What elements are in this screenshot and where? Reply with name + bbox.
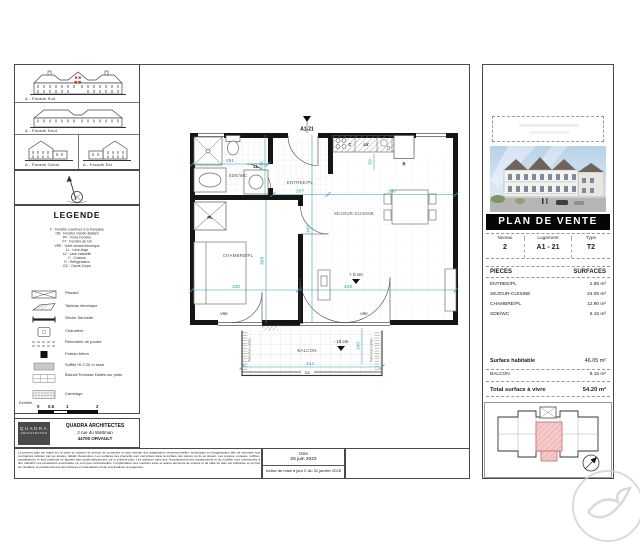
disclaimer-cell: Le présent plan est établi sur la base d… <box>14 448 262 479</box>
symbol-label: Poteau béton <box>65 352 137 357</box>
legende-title: LEGENDE <box>15 210 139 220</box>
logement-header: Logement <box>524 236 572 241</box>
dim-sde-height: 211 <box>259 161 265 169</box>
dim-entree-width: 207 <box>296 189 304 195</box>
balcon-dalles-symbol-icon <box>31 374 57 383</box>
floor-plan-drawing: A1-21 291 211 207 350 50 469 368 330 428… <box>140 64 482 448</box>
surfaces-header: SURFACES <box>573 269 606 275</box>
dim-sejour-width: 428 <box>344 284 352 290</box>
architect-name: QUADRA ARCHITECTES <box>53 423 137 429</box>
facade-nord-drawing <box>28 105 128 129</box>
symbol-label: Retombée de poutre <box>65 340 137 345</box>
sud-unit-highlight <box>75 81 78 84</box>
retombee-poutre-symbol-icon <box>31 340 57 348</box>
facade-label-est: A - Facade Est <box>83 162 112 167</box>
architect-city: 44700 ORVAULT <box>53 436 137 441</box>
facade-divider-2 <box>15 134 139 135</box>
watermark-stamp <box>572 470 640 542</box>
sink-icon <box>381 140 387 146</box>
dining-table-icon <box>392 190 428 224</box>
label-pl: PL <box>207 215 213 220</box>
key-plan-drawing <box>485 403 611 477</box>
symbol-label: Carrelage <box>65 392 137 397</box>
tableau-electrique-symbol-icon <box>31 302 57 311</box>
facade-sud-drawing <box>28 67 128 97</box>
poteau-beton-symbol-icon <box>31 350 57 359</box>
facade-label-nord: A - Facade Nord <box>25 128 57 133</box>
dim-sde-width: 291 <box>226 158 234 164</box>
plan-de-vente-sheet: A - Facade Sud A - Facade Nord A - Facad… <box>0 0 640 548</box>
soffite-symbol-icon <box>31 362 57 371</box>
dim-kitchen-width: 350 <box>388 189 396 195</box>
svg-text:Pare-Vue Lames: Pare-Vue Lames <box>370 338 374 362</box>
label-c: C <box>348 142 351 147</box>
room-label-sejour: SEJOUR-CUISINE <box>334 211 374 216</box>
fridge-icon <box>394 136 414 159</box>
facades-box: A - Facade Sud A - Facade Nord A - Facad… <box>14 64 140 170</box>
scale-tick-05: 0.5 <box>48 404 54 409</box>
pieces-header: PIECES <box>490 269 512 275</box>
facade-divider-1 <box>15 102 139 103</box>
table-row: SDE/WC 6.15 m² <box>486 312 610 322</box>
room-label-entree: ENTREE/PL <box>287 180 314 185</box>
level-balcon: - 10 cm <box>333 339 348 344</box>
table-row: ENTREE/PL 2.95 m² <box>486 282 610 292</box>
dim-sejour-height: 469 <box>306 225 312 233</box>
carrelage-symbol-icon <box>31 390 57 399</box>
scale-bar-seg1 <box>38 410 53 414</box>
dim-niche: 50 <box>368 159 374 165</box>
svg-text:Pare-Vue Lames: Pare-Vue Lames <box>248 338 252 362</box>
symbol-label: Sèche Serviette <box>65 316 137 321</box>
date-label: Date <box>263 451 344 456</box>
scale-tick-0: 0 <box>37 404 40 409</box>
watermark-bird-icon <box>574 472 640 540</box>
total-row-habitable: Surface habitable 46.05 m² <box>486 358 610 370</box>
seche-serviette-symbol-icon <box>31 315 57 324</box>
label-vre-chambre: VRE <box>220 312 228 316</box>
scale-bar-seg3 <box>68 410 98 414</box>
pare-vue-right <box>375 327 380 372</box>
empty-footer-cell <box>345 448 470 479</box>
niveau-value: 2 <box>486 244 524 251</box>
level-sejour: + 0 cm <box>349 272 363 277</box>
chaudiere-symbol-icon <box>31 327 57 337</box>
wc-tank <box>226 136 240 142</box>
scale-tick-1: 1 <box>66 404 69 409</box>
architect-address: 2 rue du Wattman <box>53 430 137 435</box>
room-label-sde: SDE/WC <box>229 173 248 178</box>
logo-placeholder-box <box>492 116 604 142</box>
symbol-label: Balcon/Terrasse Dalles sur plots <box>65 373 139 378</box>
room-label-chambre: CHAMBRE/PL <box>223 253 254 258</box>
facade-label-sud: A - Facade Sud <box>25 96 55 101</box>
scale-bar-seg2 <box>53 410 68 414</box>
niveau-header: Niveau <box>486 236 524 241</box>
label-ll: LL <box>253 164 259 169</box>
date-value: 26 juin 2023 <box>263 457 344 462</box>
label-gc: GC <box>305 371 311 375</box>
architect-logo: QUADRA ARCHITECTES <box>18 422 50 445</box>
compass-box <box>14 170 140 205</box>
abbrev-line: GC : Garde-Corps <box>20 265 134 269</box>
table-row: CHAMBRE/PL 12.90 m² <box>486 302 610 312</box>
label-lv: LV <box>363 142 368 147</box>
architect-box: QUADRA ARCHITECTES QUADRA ARCHITECTES 2 … <box>14 418 140 448</box>
plan-de-vente-banner: PLAN DE VENTE <box>486 214 610 230</box>
legende-abbreviations: F : Fenêtre ouverture à la française OB … <box>20 228 134 274</box>
unit-info-table: Niveau Logement Type 2 A1 - 21 T2 <box>486 233 610 259</box>
label-r: R <box>402 162 405 167</box>
wc-icon <box>228 141 239 155</box>
facade-ouest-drawing <box>23 137 75 163</box>
type-header: Type <box>572 236 610 241</box>
symbol-label: Placard <box>65 291 137 296</box>
room-label-balcon: BALCON <box>297 348 316 353</box>
surfaces-table-rows: ENTREE/PL 2.95 m² SEJOUR-CUISINE 24.05 m… <box>486 282 610 322</box>
disclaimer-text: Le présent plan est établi sur la base d… <box>18 451 260 469</box>
symbol-label: Tableau électrique <box>65 304 137 309</box>
architect-logo-line2: ARCHITECTES <box>18 431 50 435</box>
dim-balcon-depth: 160 <box>356 342 362 350</box>
symbol-label: Soffite Ht 2.20 m maxi <box>65 363 137 368</box>
highlighted-unit <box>536 422 562 461</box>
facade-label-ouest: A - Facade Ouest <box>25 162 59 167</box>
dim-balcon-width: 444 <box>306 361 314 367</box>
facade-divider-3 <box>78 134 79 169</box>
legende-box: LEGENDE F : Fenêtre ouverture à la franç… <box>14 205 140 414</box>
section-marker-label: A1-21 <box>300 127 314 133</box>
date-cell: Date 26 juin 2023 Indice de mise à jour … <box>262 448 345 479</box>
building-photo <box>490 146 606 212</box>
surfaces-table-header: PIECES SURFACES <box>486 266 610 278</box>
dim-chambre-width: 330 <box>232 284 240 290</box>
symbol-label: Chaudière <box>65 329 137 334</box>
key-plan-north-icon <box>583 455 599 471</box>
key-plan-box <box>484 402 612 478</box>
totals-block: Surface habitable 46.05 m² BALCON 8.15 m… <box>486 358 610 397</box>
logement-value: A1 - 21 <box>524 244 572 258</box>
north-compass-icon <box>45 172 105 205</box>
scale-tick-2: 2 <box>96 404 99 409</box>
section-marker: A1-21 <box>300 116 314 133</box>
total-row-grand: Total surface à vivre 54.20 m² <box>486 382 610 397</box>
revision-note: Indice de mise à jour C du 31 janvier 20… <box>263 468 344 473</box>
dim-chambre-height: 368 <box>260 257 266 265</box>
total-row-balcon: BALCON 8.15 m² <box>486 370 610 382</box>
bed-icon <box>194 242 246 304</box>
table-row: SEJOUR-CUISINE 24.05 m² <box>486 292 610 302</box>
echelle-label: Echelle <box>19 400 32 405</box>
type-value: T2 <box>572 244 610 251</box>
facade-est-drawing <box>81 137 133 163</box>
label-vre-sejour: VRE <box>360 312 368 316</box>
placard-symbol-icon <box>31 290 57 299</box>
